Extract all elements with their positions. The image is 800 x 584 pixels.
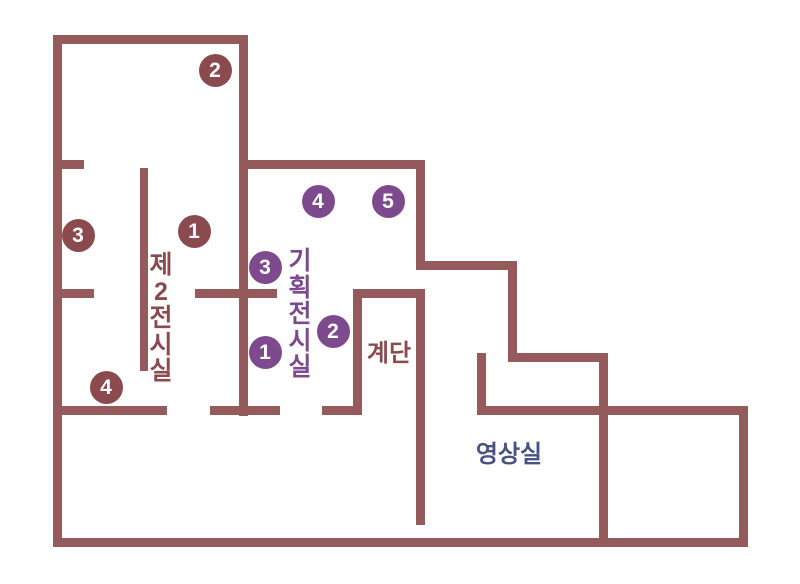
marker-exhibition-4: 4 <box>90 371 123 404</box>
marker-special-2: 2 <box>317 315 350 348</box>
markers-layer: 123412345 <box>0 0 800 584</box>
marker-exhibition-3: 3 <box>62 219 95 252</box>
marker-exhibition-2: 2 <box>199 54 232 87</box>
marker-special-3: 3 <box>249 251 282 284</box>
marker-special-4: 4 <box>302 185 335 218</box>
marker-special-5: 5 <box>372 185 405 218</box>
marker-exhibition-1: 1 <box>178 215 211 248</box>
floorplan-map: 제2전시실기획전시실계단영상실 123412345 <box>0 0 800 584</box>
marker-special-1: 1 <box>249 336 282 369</box>
